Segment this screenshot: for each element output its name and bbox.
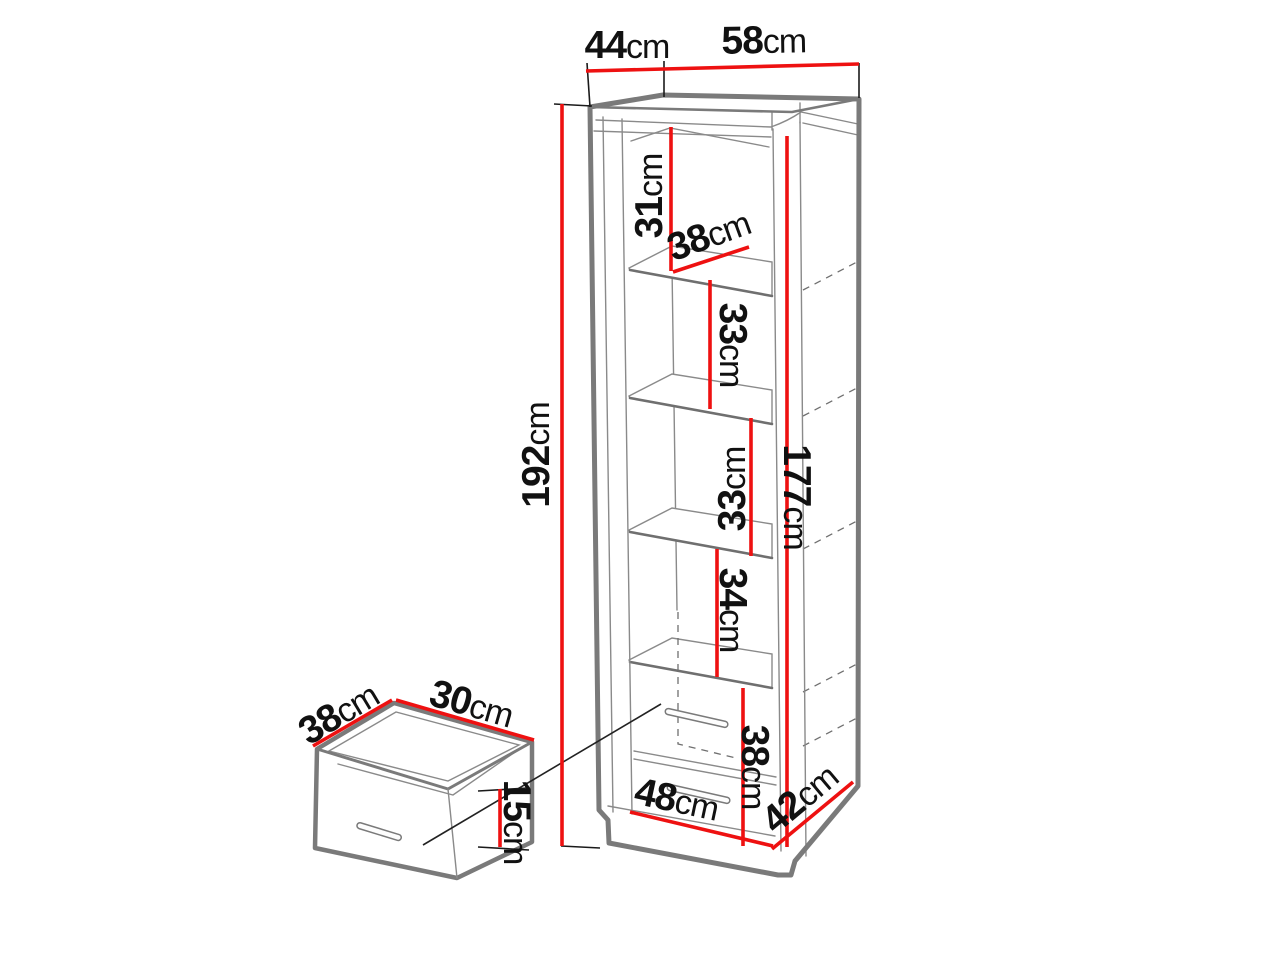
svg-text:15cm: 15cm — [495, 780, 538, 865]
interior-ceiling-lines — [631, 128, 769, 147]
furniture-dimension-diagram: 44cm 58cm 192cm 31cm 38cm 33cm 33cm 34cm… — [0, 0, 1280, 960]
dim-height-label: 192cm — [515, 402, 558, 507]
svg-text:34cm: 34cm — [711, 568, 754, 653]
svg-text:48cm: 48cm — [631, 770, 723, 830]
cornice — [594, 112, 858, 137]
upper-drawer-handle — [665, 708, 729, 728]
dim-detail-height-label: 15cm — [495, 780, 538, 865]
left-stile-line-1 — [603, 117, 613, 812]
svg-text:177cm: 177cm — [775, 444, 818, 549]
pillar-cap-lines — [772, 103, 800, 130]
dim-shelf-space-3-label: 33cm — [711, 447, 754, 532]
svg-text:33cm: 33cm — [711, 303, 754, 388]
dim-shelf-space-2-label: 33cm — [711, 303, 754, 388]
dim-top-shelf-space-label: 31cm — [628, 154, 671, 239]
dim-base-width-label: 48cm — [631, 770, 723, 830]
svg-text:31cm: 31cm — [628, 154, 671, 239]
dim-shelf-space-4-label: 34cm — [711, 568, 754, 653]
diagram-canvas: 44cm 58cm 192cm 31cm 38cm 33cm 33cm 34cm… — [0, 0, 1280, 960]
drawer-corner-crease — [448, 789, 457, 878]
svg-text:58cm: 58cm — [721, 18, 806, 62]
svg-text:33cm: 33cm — [711, 447, 754, 532]
dim-interior-height-label: 177cm — [775, 444, 818, 549]
svg-text:44cm: 44cm — [585, 24, 670, 67]
drawer-detail-handle — [356, 822, 402, 841]
dim-top-depth-label: 44cm — [585, 24, 670, 67]
svg-text:192cm: 192cm — [515, 402, 558, 507]
dim-top-width-label: 58cm — [721, 18, 806, 62]
